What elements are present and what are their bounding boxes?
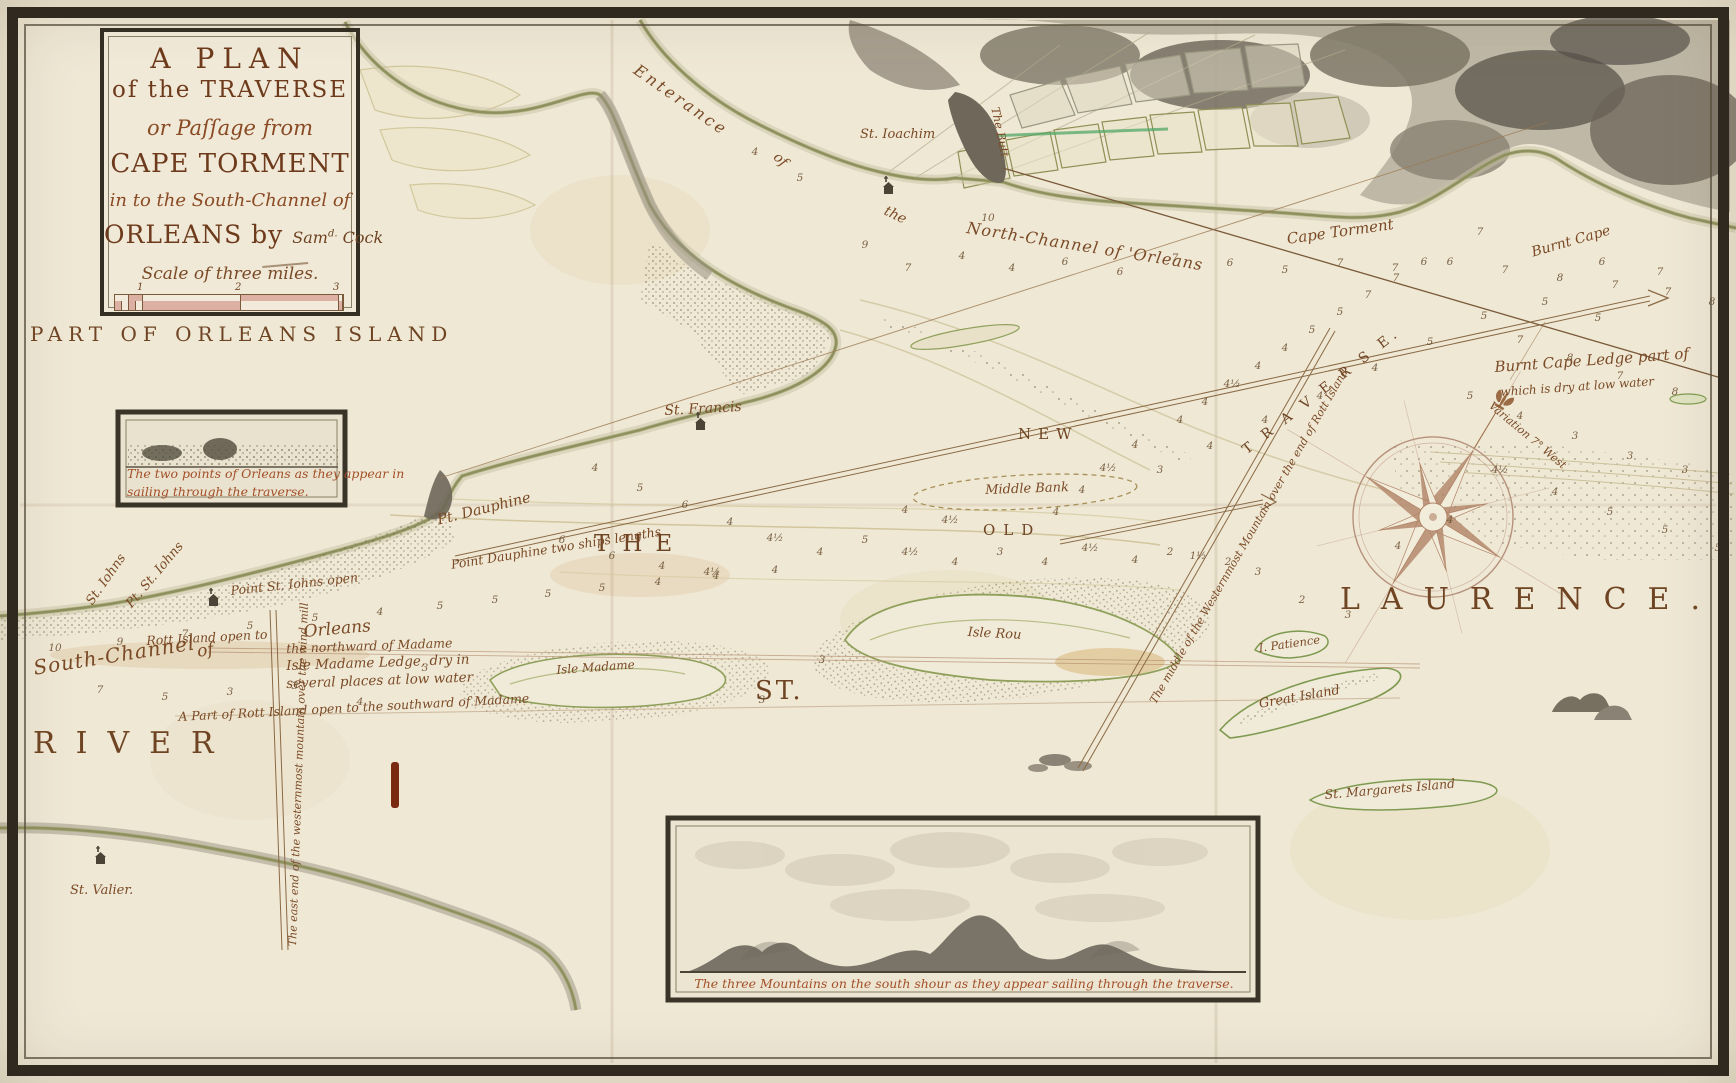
- orleans-points-caption-2: sailing through the traverse.: [127, 484, 309, 499]
- scale-label: Scale of three miles.: [104, 264, 356, 284]
- shoal-contours: [390, 300, 1450, 590]
- title-line-6: ORLEANS by Samd. Cock: [104, 220, 356, 249]
- title-line-5: in to the South-Channel of: [104, 190, 356, 211]
- scale-bar: 1 2 3: [114, 294, 344, 311]
- three-mountains-caption: The three Mountains on the south shour a…: [678, 976, 1250, 991]
- scale-tick-3: 3: [333, 282, 339, 293]
- south-shore: [0, 828, 576, 1010]
- three-mountains-inset: [668, 818, 1258, 1000]
- title-line-4: CAPE TORMENT: [104, 149, 356, 179]
- title-line-2: of the TRAVERSE: [104, 77, 356, 103]
- scale-tick-2: 2: [235, 282, 241, 293]
- nautical-chart: A PLAN of the TRAVERSE or Paſſage from C…: [0, 0, 1736, 1083]
- title-cartouche: A PLAN of the TRAVERSE or Paſſage from C…: [100, 28, 360, 316]
- beacon-mark: [391, 762, 399, 808]
- title-line-3: or Paſſage from: [104, 116, 356, 140]
- patience-island: [1255, 631, 1328, 658]
- scale-tick-1: 1: [137, 282, 143, 293]
- author-signature: Samd. Cock: [292, 228, 383, 247]
- middle-bank-outline: [912, 469, 1137, 515]
- fleur-de-lis-icon: [1490, 387, 1516, 414]
- orleans-points-caption-1: The two points of Orleans as they appear…: [127, 466, 404, 481]
- bearing-rocks: [1028, 754, 1092, 772]
- north-shore-terrain: [640, 15, 1736, 228]
- title-line-1: A PLAN: [104, 42, 356, 75]
